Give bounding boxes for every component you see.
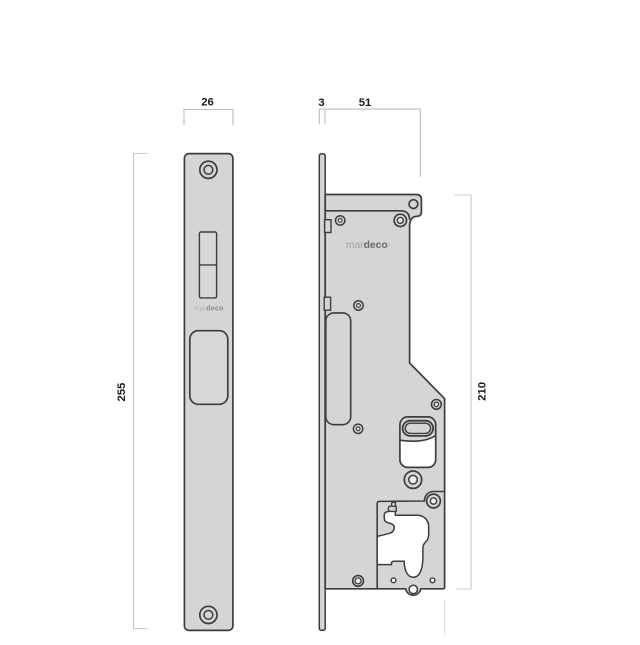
svg-text:3: 3 [318, 97, 324, 109]
svg-text:210: 210 [477, 382, 489, 401]
svg-text:255: 255 [116, 383, 128, 402]
svg-text:mardeco°: mardeco° [346, 240, 391, 251]
svg-text:mardeco°: mardeco° [193, 304, 225, 312]
svg-text:51: 51 [359, 97, 372, 109]
svg-text:26: 26 [201, 97, 214, 109]
